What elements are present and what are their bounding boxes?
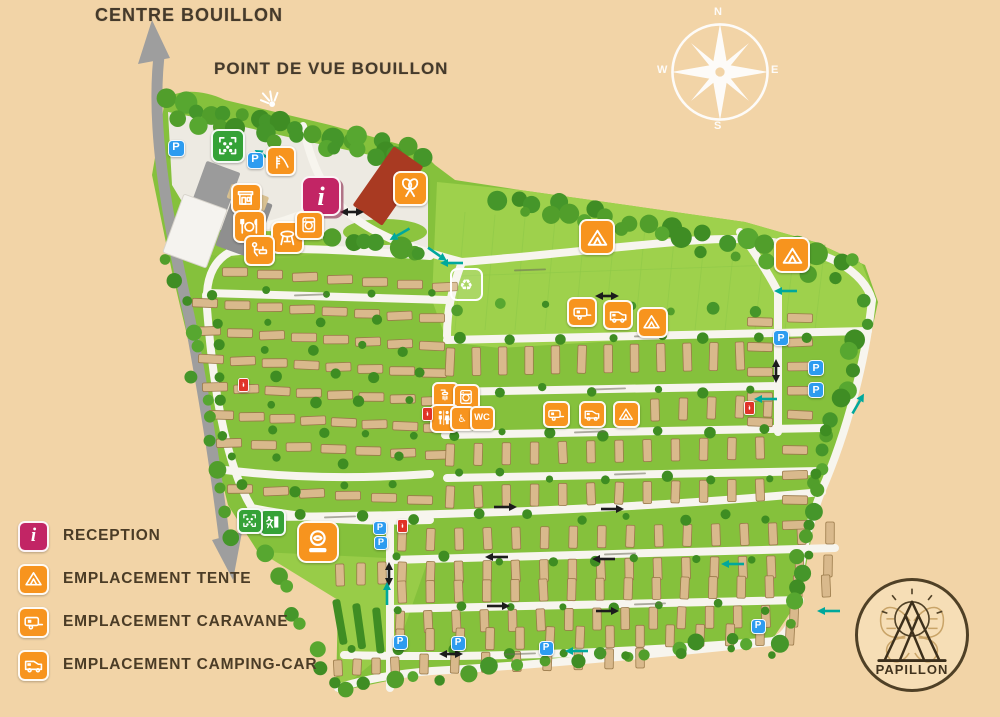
reception-icon: i [18,521,49,552]
legend: i RECEPTION EMPLACEMENT TENTE EMPLACEMEN… [18,520,317,692]
parking-icon: P [373,521,387,535]
legend-label: EMPLACEMENT CARAVANE [63,613,289,631]
parking-icon: P [539,641,554,656]
caravan-zone-icon [543,401,570,428]
caravan-zone-icon [567,297,597,327]
activity-area-icon [297,521,339,563]
compass-w: W [657,64,667,76]
slide-icon [266,146,296,176]
parking-icon: P [374,536,388,550]
svg-text:♻: ♻ [459,276,473,294]
parking-icon: P [393,635,408,650]
tent-zone-icon [613,401,640,428]
parking-icon: P [808,360,824,376]
tent-zone-icon [579,219,615,255]
fire-point-icon [422,407,433,421]
fire-point-icon [238,378,249,392]
legend-item-tente: EMPLACEMENT TENTE [18,563,317,595]
fire-point-icon [744,401,755,415]
parking-icon: P [247,152,264,169]
campingcar-zone-icon [579,401,606,428]
logo-text: PAPILLON [858,662,966,677]
parking-icon: P [751,619,766,634]
campingcar-zone-icon [603,300,633,330]
playground-icon [211,129,245,163]
legend-label: EMPLACEMENT TENTE [63,570,251,588]
svg-text:♿: ♿ [457,414,466,425]
wc-icon: WC [470,406,495,431]
butterfly-wings [881,607,944,661]
fire-point-icon [397,519,408,533]
meeting-point-icon [237,508,263,534]
tipi-icon [879,602,945,661]
legend-label: EMPLACEMENT CAMPING-CAR [63,656,317,674]
tent-icon [18,564,49,595]
campsite-map: N E S W CENTRE BOUILLON POINT DE VUE BOU… [0,0,1000,717]
label-point-de-vue: POINT DE VUE BOUILLON [214,59,448,79]
parking-icon: P [808,382,824,398]
parking-icon: P [773,330,789,346]
campingcar-icon [18,650,49,681]
shop-icon [231,183,262,214]
badminton-icon [393,171,428,206]
recycling-point-icon: ♻ [450,268,483,301]
legend-label: RECEPTION [63,527,161,545]
papillon-logo: PAPILLON [855,578,969,692]
parking-icon: P [168,140,185,157]
compass-s: S [714,120,721,132]
tent-zone-icon [774,237,810,273]
parking-icon: P [451,636,466,651]
compass-e: E [771,64,778,76]
laundry-icon [295,211,324,240]
tent-zone-icon [637,307,668,338]
compass-n: N [714,6,722,18]
legend-item-caravane: EMPLACEMENT CARAVANE [18,606,317,638]
label-centre-bouillon: CENTRE BOUILLON [95,5,283,26]
dishwashing-icon [244,235,275,266]
road-arrow-north [138,20,170,64]
caravan-icon [18,607,49,638]
viewpoint-icon [255,85,285,115]
compass-rose: N E S W [658,10,782,134]
legend-item-campingcar: EMPLACEMENT CAMPING-CAR [18,649,317,681]
